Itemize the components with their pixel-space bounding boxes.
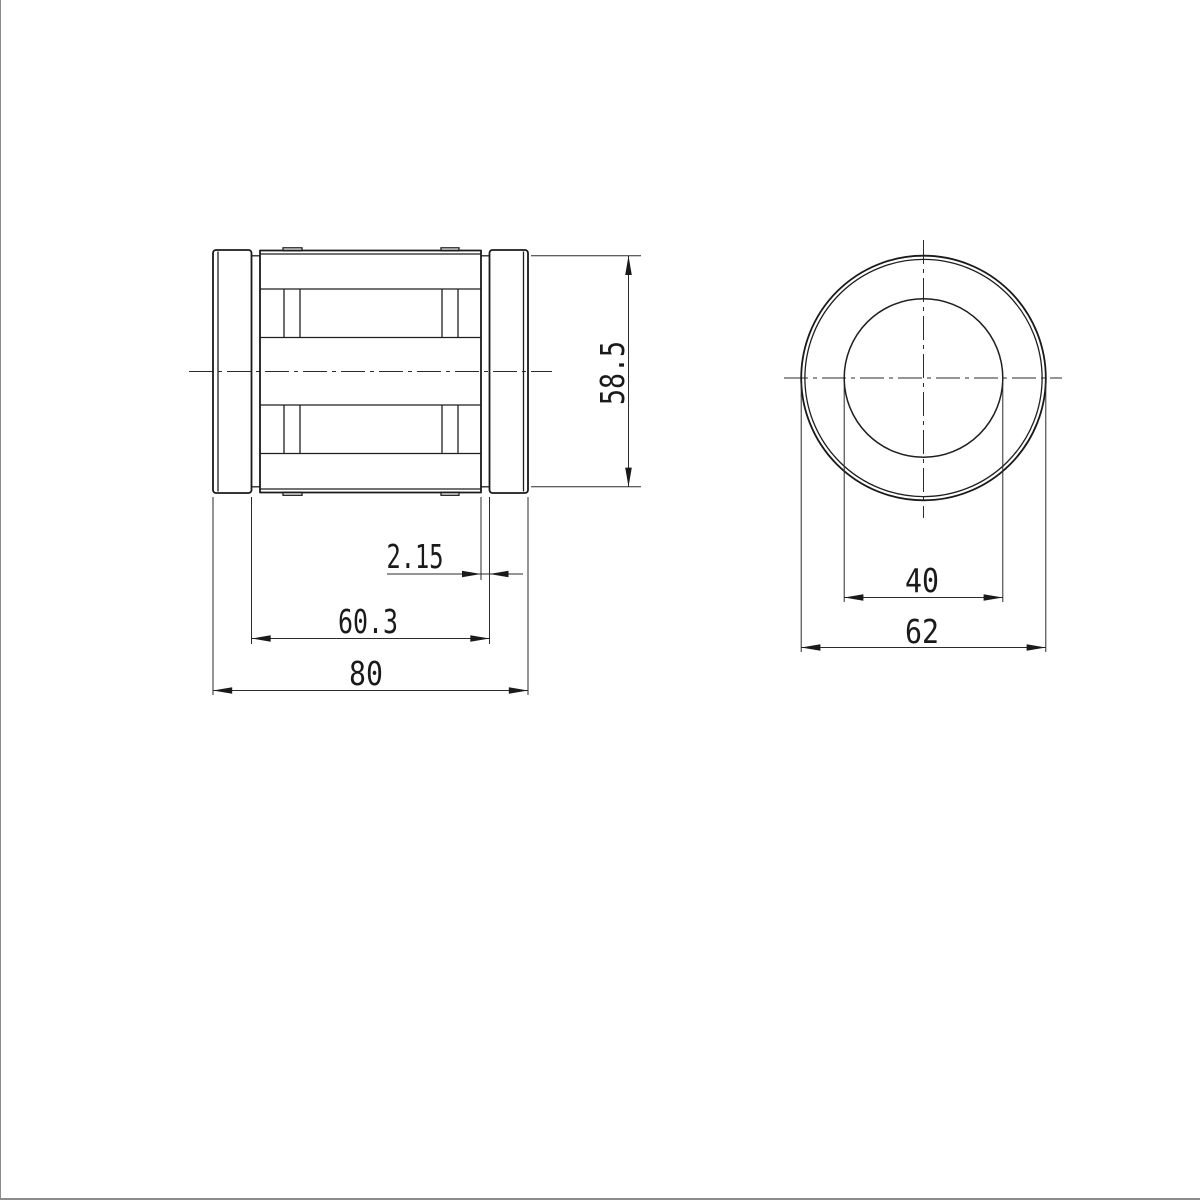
dim-text-bore-diameter: 40: [905, 561, 939, 600]
arrow-left-icon: [844, 594, 863, 601]
pocket-tab: [441, 492, 459, 495]
dim-text-groove-span: 60.3: [338, 602, 398, 641]
arrow-right-icon: [470, 635, 489, 642]
technical-drawing: 58.5 2.15 60.3: [0, 0, 1200, 1200]
pocket-tab: [283, 492, 302, 495]
dimension-groove-span: 60.3: [252, 497, 490, 644]
arrow-left-icon: [213, 687, 232, 694]
side-view: 58.5 2.15 60.3: [189, 248, 641, 695]
arrow-right-icon: [509, 687, 528, 694]
arrow-right-icon: [1027, 644, 1046, 651]
dim-text-groove-diameter: 58.5: [593, 341, 632, 405]
arrow-left-icon: [490, 571, 509, 578]
canvas-left-edge: [0, 0, 1, 1200]
dim-text-groove-width: 2.15: [387, 537, 444, 576]
arrow-right-icon: [462, 571, 481, 578]
arrow-down-icon: [625, 468, 632, 487]
drawing-canvas: 58.5 2.15 60.3: [0, 0, 1200, 1200]
arrow-left-icon: [252, 635, 271, 642]
dim-text-overall-length: 80: [349, 654, 383, 693]
pocket-tab: [283, 248, 302, 251]
arrow-right-icon: [984, 594, 1003, 601]
dim-text-outer-diameter: 62: [905, 612, 939, 651]
arrow-up-icon: [625, 256, 632, 275]
arrow-left-icon: [801, 644, 820, 651]
dimension-groove-width: 2.15: [387, 497, 524, 580]
front-view: 40 62: [784, 240, 1062, 652]
pocket-tab: [441, 248, 459, 251]
